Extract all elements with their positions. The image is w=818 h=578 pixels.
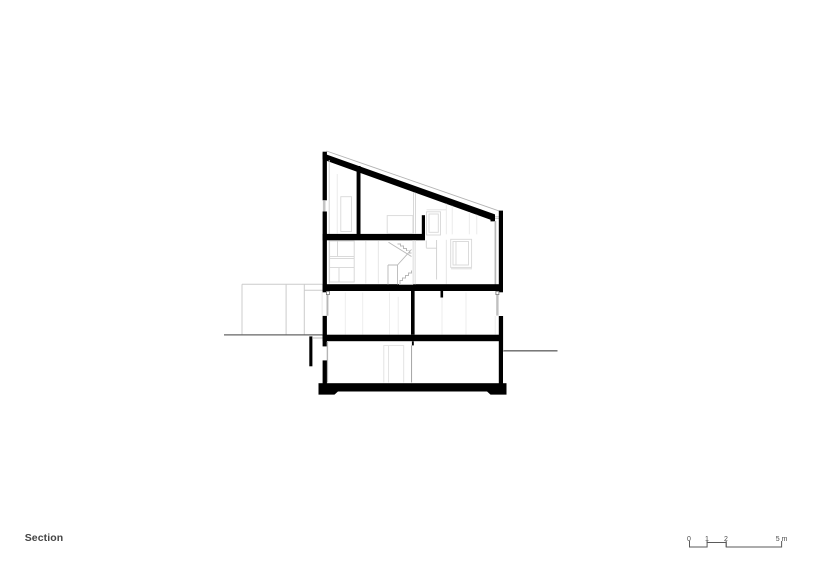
svg-text:1: 1 [705, 536, 709, 543]
svg-text:0: 0 [687, 536, 691, 543]
svg-text:5 m: 5 m [776, 536, 788, 543]
svg-text:2: 2 [724, 536, 728, 543]
